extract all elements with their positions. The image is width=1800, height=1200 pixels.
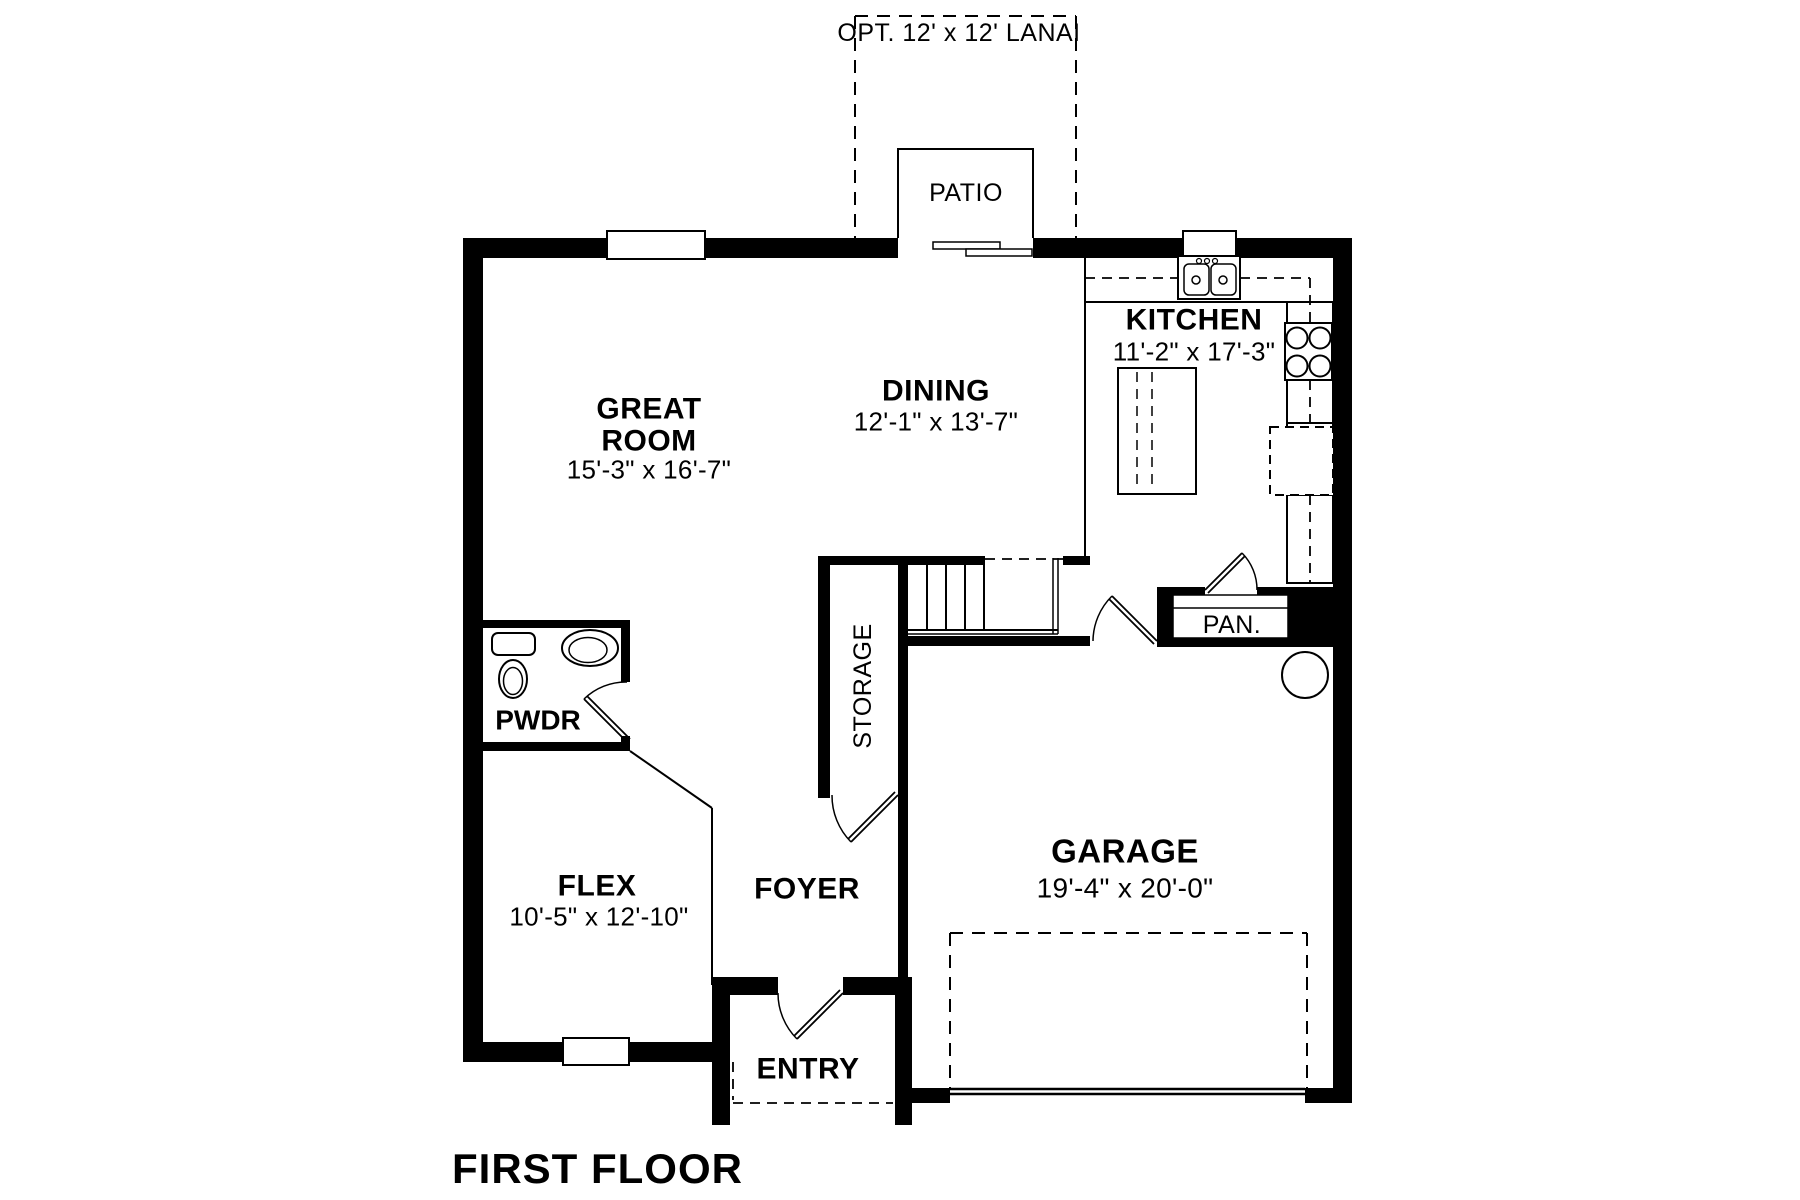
- vanity-sink: [562, 630, 618, 666]
- garage-clearance-outline: [950, 933, 1307, 1088]
- door-garage-entry: [1093, 596, 1157, 644]
- dining-dims: 12'-1" x 13'-7": [854, 408, 1018, 435]
- great-room-label-line1: GREAT: [596, 393, 701, 425]
- kitchen-window: [1183, 231, 1236, 259]
- patio-label: PATIO: [929, 180, 1003, 206]
- kitchen-label: KITCHEN: [1126, 304, 1263, 336]
- stairs: [908, 556, 1063, 634]
- pantry-label: PAN.: [1203, 612, 1262, 638]
- kitchen-sink: [1178, 256, 1240, 299]
- door-pantry: [1205, 553, 1257, 593]
- lanai-label: OPT. 12' x 12' LANAI: [837, 20, 1080, 46]
- great-room-window: [607, 231, 705, 259]
- garage-label: GARAGE: [1051, 835, 1199, 870]
- refrigerator: [1270, 427, 1333, 495]
- powder-label: PWDR: [495, 705, 581, 734]
- flex-label: FLEX: [558, 870, 637, 902]
- floor-plan-drawing: [0, 0, 1800, 1200]
- flex-dims: 10'-5" x 12'-10": [509, 903, 688, 930]
- kitchen-island: [1118, 368, 1196, 494]
- garage-dims: 19'-4" x 20'-0": [1037, 873, 1214, 902]
- dining-label: DINING: [882, 375, 990, 407]
- garage-door: [950, 1089, 1305, 1094]
- great-room-label-line2: ROOM: [601, 425, 696, 457]
- flex-window: [563, 1038, 629, 1065]
- entry-label: ENTRY: [756, 1053, 859, 1085]
- storage-label: STORAGE: [850, 623, 876, 748]
- toilet-fixture: [492, 633, 535, 698]
- sliding-door: [898, 238, 1033, 258]
- door-storage: [832, 792, 898, 842]
- foyer-label: FOYER: [754, 873, 860, 905]
- cooktop: [1285, 323, 1332, 380]
- door-front: [778, 990, 843, 1039]
- plan-title: FIRST FLOOR: [452, 1145, 743, 1193]
- floor-plan: OPT. 12' x 12' LANAI PATIO GREAT ROOM 15…: [0, 0, 1800, 1200]
- door-powder: [584, 682, 630, 742]
- foyer-boundary: [630, 751, 712, 985]
- water-heater: [1282, 652, 1328, 698]
- great-room-dims: 15'-3" x 16'-7": [567, 456, 731, 483]
- kitchen-dims: 11'-2" x 17'-3": [1113, 338, 1275, 365]
